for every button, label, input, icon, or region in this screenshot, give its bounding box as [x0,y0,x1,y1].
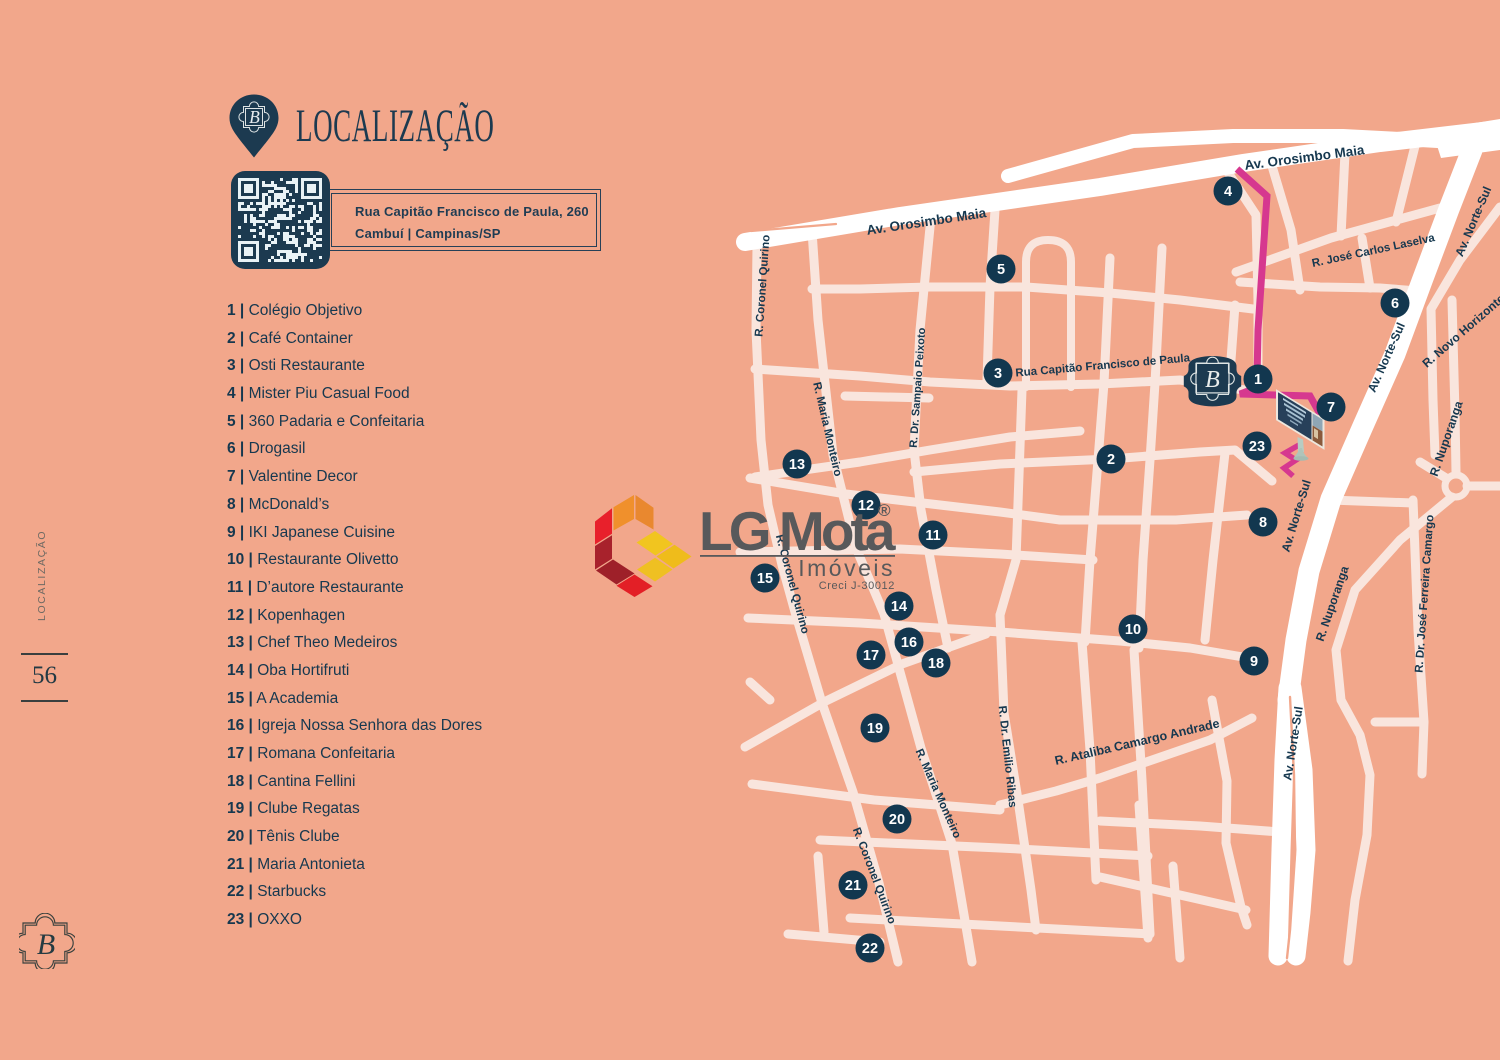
svg-text:20: 20 [889,812,905,828]
svg-text:B: B [249,107,260,127]
svg-text:R. Dr. Sampaio Peixoto: R. Dr. Sampaio Peixoto [908,327,928,448]
svg-text:®: ® [878,501,891,520]
svg-text:11: 11 [925,528,940,544]
svg-text:Imóveis: Imóveis [798,555,895,581]
svg-text:22: 22 [862,941,878,957]
svg-text:19: 19 [867,721,883,737]
svg-text:16: 16 [901,635,917,651]
svg-text:6: 6 [1391,296,1399,312]
svg-text:5: 5 [997,262,1005,278]
svg-text:14: 14 [891,599,907,615]
svg-text:9: 9 [1250,654,1258,670]
svg-text:Creci J-30012: Creci J-30012 [819,580,895,592]
svg-text:8: 8 [1259,515,1267,531]
svg-text:3: 3 [994,366,1002,382]
svg-text:18: 18 [928,656,944,672]
svg-text:21: 21 [845,878,861,894]
svg-text:R. Maria Monteiro: R. Maria Monteiro [913,747,963,840]
svg-text:17: 17 [863,648,879,664]
svg-text:B: B [37,928,55,961]
svg-text:LG Mota: LG Mota [699,500,896,562]
svg-text:4: 4 [1224,184,1232,200]
svg-text:7: 7 [1327,400,1335,416]
svg-text:10: 10 [1125,622,1141,638]
svg-text:23: 23 [1249,439,1265,455]
svg-text:2: 2 [1107,452,1115,468]
svg-text:13: 13 [789,457,805,473]
svg-text:B: B [1205,367,1220,393]
svg-text:15: 15 [757,571,773,587]
svg-text:1: 1 [1254,372,1262,388]
